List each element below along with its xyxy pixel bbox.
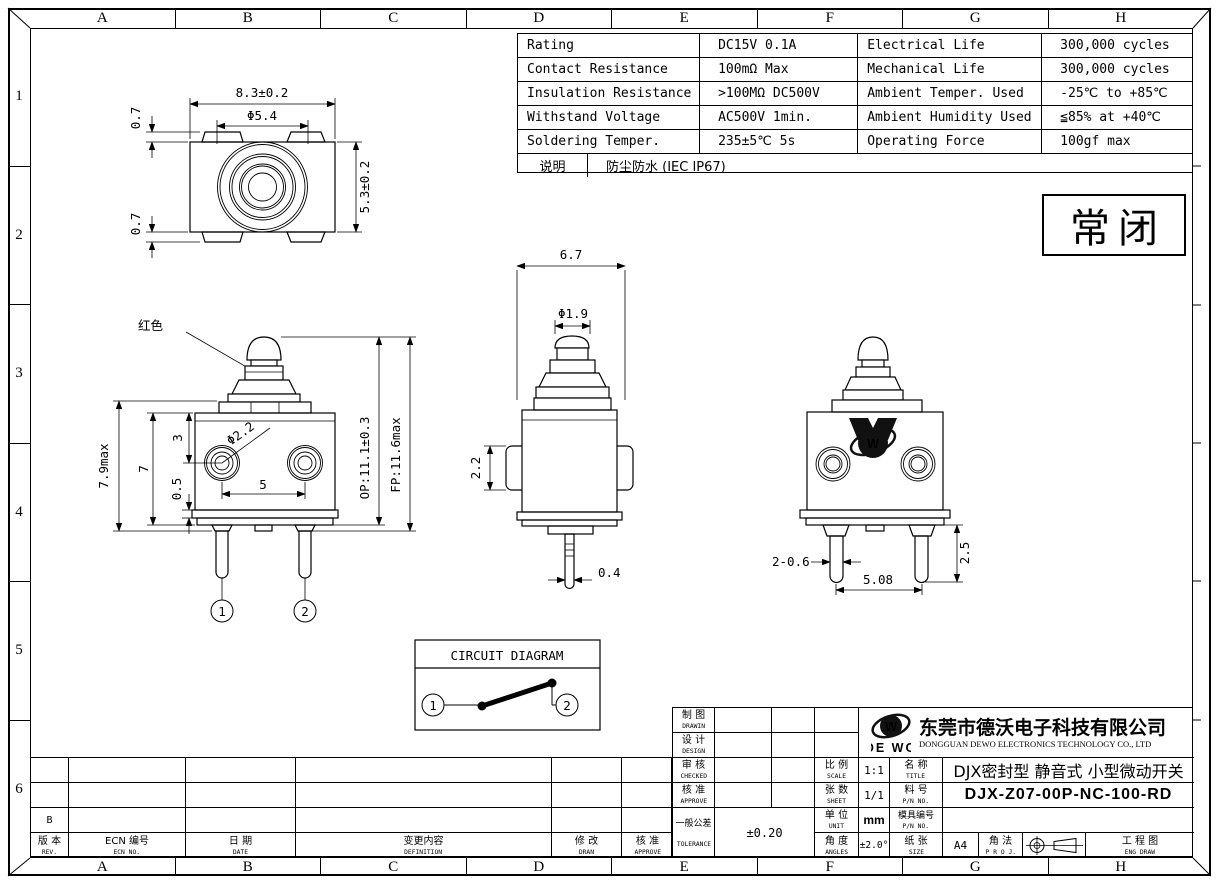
grid-letter: F [758, 858, 904, 876]
field-label-cn: 料 号 [904, 785, 927, 797]
rev-value: B [31, 808, 69, 833]
grid-letter: E [612, 8, 758, 28]
field-label-en: P R O J. [985, 848, 1015, 855]
contact-state-box: 常闭 [1042, 194, 1186, 256]
field-eng-draw: 工 程 图 ENG DRAW [1086, 833, 1194, 858]
signature-cell [715, 783, 772, 808]
rev-cell [296, 758, 552, 783]
field-label-cn: 比 例 [825, 760, 848, 772]
field-label-en: TOLERANCE [676, 840, 710, 847]
field-title: 名 称 TITLE [890, 758, 943, 783]
field-angles: 角 度 ANGLES [815, 833, 859, 858]
spec-label: Ambient Humidity Used [858, 106, 1042, 129]
mold-value [943, 808, 1194, 833]
field-label-en: TITLE [907, 772, 926, 779]
dewo-logo-icon: W DE WO [871, 710, 911, 756]
grid-letter: G [903, 8, 1049, 28]
rev-cell [186, 808, 296, 833]
spec-table: Rating DC15V 0.1A Electrical Life 300,00… [517, 33, 1193, 173]
rev-header-cn: 变更内容 [404, 836, 444, 848]
field-label-en: ENG DRAW [1125, 848, 1155, 855]
signature-cell [715, 733, 772, 758]
signature-cell [772, 783, 815, 808]
rev-cell [69, 783, 186, 808]
grid-number: 1 [8, 28, 30, 167]
field-drawn: 制 图 DRAWIN [673, 708, 715, 733]
field-label-cn: 单 位 [825, 810, 848, 822]
field-proj: 角 法 P R O J. [979, 833, 1023, 858]
grid-letter: G [903, 858, 1049, 876]
field-label-en: ANGLES [825, 848, 848, 855]
field-scale: 比 例 SCALE [815, 758, 859, 783]
spec-note-value: 防尘防水 (IEC IP67) [588, 154, 1192, 177]
title-block: 制 图 DRAWIN W DE WO 东莞市德沃电子科技有限公司 DONGGUA… [672, 707, 1193, 857]
rev-header-en: DATE [233, 848, 248, 855]
spec-label: Soldering Temper. [518, 130, 700, 153]
rev-cell [552, 758, 622, 783]
spec-note-label: 说明 [518, 154, 588, 177]
grid-number: 5 [8, 582, 30, 721]
grid-letter: A [30, 858, 176, 876]
spec-label: Withstand Voltage [518, 106, 700, 129]
svg-text:DE WO: DE WO [871, 741, 911, 755]
rev-cell [622, 808, 673, 833]
field-tolerance: 一般公差 TOLERANCE [673, 808, 715, 858]
spec-label: Insulation Resistance [518, 82, 700, 105]
rev-header: ECN 编号 ECN NO. [69, 833, 186, 858]
company-names: 东莞市德沃电子科技有限公司 DONGGUAN DEWO ELECTRONICS … [919, 717, 1166, 749]
spec-note-row: 说明 防尘防水 (IEC IP67) [518, 154, 1192, 177]
field-unit: 单 位 UNIT [815, 808, 859, 833]
rev-cell [186, 783, 296, 808]
revision-table: B 版 本 REV. ECN 编号 ECN NO. 日 期 DATE 变更内容 … [30, 757, 672, 857]
signature-cell [715, 708, 772, 733]
grid-number: 2 [8, 167, 30, 306]
field-label-cn: 设 计 [682, 735, 705, 747]
rev-cell [622, 783, 673, 808]
rev-header-cn: 日 期 [229, 836, 252, 848]
spec-label: Mechanical Life [858, 58, 1042, 81]
rev-header-cn: ECN 编号 [105, 836, 149, 848]
grid-number: 3 [8, 305, 30, 444]
angles-value: ±2.0° [859, 833, 890, 858]
signature-cell [715, 758, 772, 783]
grid-letter: D [467, 858, 613, 876]
company-name-en: DONGGUAN DEWO ELECTRONICS TECHNOLOGY CO.… [919, 739, 1166, 749]
field-label-en: DRAWIN [682, 722, 705, 729]
size-value: A4 [943, 833, 979, 858]
spec-value: 235±5℃ 5s [700, 130, 858, 153]
rev-cell [69, 808, 186, 833]
field-label-en: DESIGN [682, 747, 705, 754]
field-label-en: UNIT [829, 822, 844, 829]
signature-cell [815, 708, 859, 733]
rev-cell [296, 783, 552, 808]
signature-cell [772, 733, 815, 758]
signature-cell [815, 733, 859, 758]
rev-header: 版 本 REV. [31, 833, 69, 858]
spec-value: ≦85% at +40℃ [1042, 106, 1192, 129]
spec-row: Insulation Resistance >100MΩ DC500V Ambi… [518, 82, 1192, 106]
field-design: 设 计 DESIGN [673, 733, 715, 758]
spec-value: 300,000 cycles [1042, 58, 1192, 81]
field-checked: 审 核 CHECKED [673, 758, 715, 783]
rev-header-en: ECN NO. [114, 848, 141, 855]
field-label-en: CHECKED [680, 772, 707, 779]
field-approve: 核 准 APPROVE [673, 783, 715, 808]
spec-value: 100mΩ Max [700, 58, 858, 81]
grid-letter: D [467, 8, 613, 28]
field-label-cn: 核 准 [682, 785, 705, 797]
signature-cell [772, 758, 815, 783]
spec-value: AC500V 1min. [700, 106, 858, 129]
field-label-cn: 模具编号 [898, 810, 934, 822]
grid-numbers-left: 1 2 3 4 5 6 [8, 28, 30, 858]
spec-value: 100gf max [1042, 130, 1192, 153]
rev-header-en: REV. [42, 848, 57, 855]
field-label-en: SIZE [908, 848, 923, 855]
field-label-cn: 名 称 [904, 760, 927, 772]
grid-letter: C [321, 8, 467, 28]
scale-value: 1:1 [859, 758, 890, 783]
spec-row: Soldering Temper. 235±5℃ 5s Operating Fo… [518, 130, 1192, 154]
company-block: W DE WO 东莞市德沃电子科技有限公司 DONGGUAN DEWO ELEC… [859, 708, 1194, 758]
rev-cell [31, 783, 69, 808]
field-label-en: SHEET [827, 797, 846, 804]
unit-value: mm [859, 808, 890, 833]
company-name-cn: 东莞市德沃电子科技有限公司 [919, 717, 1166, 739]
first-angle-projection-icon [1024, 834, 1085, 857]
field-label-en: APPROVE [680, 797, 707, 804]
spec-label: Rating [518, 34, 700, 57]
grid-letter: C [321, 858, 467, 876]
projection-symbol-cell [1023, 833, 1086, 858]
part-number: DJX-Z07-00P-NC-100-RD [943, 783, 1194, 808]
grid-letter: B [176, 8, 322, 28]
rev-header-cn: 修 改 [575, 836, 598, 848]
rev-header-cn: 版 本 [38, 836, 61, 848]
field-sheet: 张 数 SHEET [815, 783, 859, 808]
rev-header: 核 准 APPROVE [622, 833, 673, 858]
rev-header: 日 期 DATE [186, 833, 296, 858]
spec-row: Withstand Voltage AC500V 1min. Ambient H… [518, 106, 1192, 130]
field-label-cn: 制 图 [682, 710, 705, 722]
spec-value: >100MΩ DC500V [700, 82, 858, 105]
grid-letter: H [1049, 8, 1194, 28]
svg-text:W: W [885, 720, 897, 734]
field-label-cn: 角 度 [825, 836, 848, 848]
rev-cell [552, 783, 622, 808]
rev-header-en: APPROVE [634, 848, 661, 855]
spec-value: DC15V 0.1A [700, 34, 858, 57]
field-label-en: P/N NO. [903, 797, 930, 804]
grid-letters-top: A B C D E F G H [30, 8, 1193, 28]
field-size: 纸 张 SIZE [890, 833, 943, 858]
field-label-cn: 工 程 图 [1122, 836, 1158, 848]
field-mold: 模具编号 P/N NO. [890, 808, 943, 833]
rev-cell [296, 808, 552, 833]
spec-label: Contact Resistance [518, 58, 700, 81]
tolerance-value: ±0.20 [715, 808, 815, 858]
spec-label: Operating Force [858, 130, 1042, 153]
field-label-cn: 一般公差 [675, 818, 711, 830]
grid-letter: A [30, 8, 176, 28]
grid-number: 4 [8, 444, 30, 583]
grid-letter: F [758, 8, 904, 28]
rev-header-en: DEFINITION [405, 848, 443, 855]
grid-letter: E [612, 858, 758, 876]
signature-cell [772, 708, 815, 733]
rev-cell [31, 758, 69, 783]
drawing-title: DJX密封型 静音式 小型微动开关 [943, 758, 1194, 783]
sheet-value: 1/1 [859, 783, 890, 808]
field-pn: 料 号 P/N NO. [890, 783, 943, 808]
field-label-en: SCALE [827, 772, 846, 779]
rev-header: 修 改 DRAN [552, 833, 622, 858]
field-label-cn: 张 数 [825, 785, 848, 797]
grid-letter: B [176, 858, 322, 876]
spec-value: 300,000 cycles [1042, 34, 1192, 57]
rev-header: 变更内容 DEFINITION [296, 833, 552, 858]
rev-header-en: DRAN [579, 848, 594, 855]
field-label-en: P/N NO. [903, 822, 930, 829]
rev-cell [69, 758, 186, 783]
field-label-cn: 纸 张 [904, 836, 927, 848]
rev-cell [622, 758, 673, 783]
spec-row: Contact Resistance 100mΩ Max Mechanical … [518, 58, 1192, 82]
rev-cell [552, 808, 622, 833]
rev-header-cn: 核 准 [636, 836, 659, 848]
grid-number: 6 [8, 721, 30, 859]
rev-cell [186, 758, 296, 783]
drawing-sheet: A B C D E F G H A B C D E F G H 1 2 3 4 … [0, 0, 1219, 884]
grid-letters-bottom: A B C D E F G H [30, 858, 1193, 876]
spec-label: Ambient Temper. Used [858, 82, 1042, 105]
spec-label: Electrical Life [858, 34, 1042, 57]
grid-letter: H [1049, 858, 1194, 876]
spec-row: Rating DC15V 0.1A Electrical Life 300,00… [518, 34, 1192, 58]
field-label-cn: 角 法 [989, 836, 1012, 848]
spec-value: -25℃ to +85℃ [1042, 82, 1192, 105]
field-label-cn: 审 核 [682, 760, 705, 772]
